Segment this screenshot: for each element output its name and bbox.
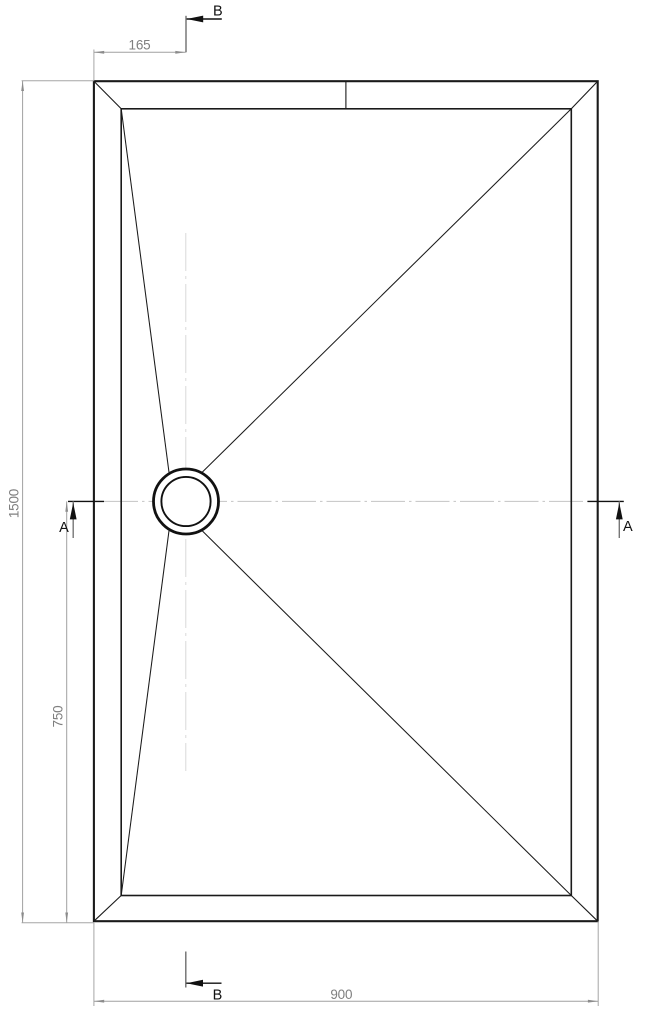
svg-text:B: B [213, 987, 223, 1003]
svg-text:165: 165 [129, 37, 151, 52]
svg-text:750: 750 [51, 706, 66, 728]
svg-text:A: A [623, 519, 633, 535]
svg-text:B: B [213, 3, 223, 19]
svg-text:900: 900 [330, 987, 352, 1002]
svg-text:A: A [59, 520, 69, 536]
svg-text:1500: 1500 [7, 489, 22, 518]
